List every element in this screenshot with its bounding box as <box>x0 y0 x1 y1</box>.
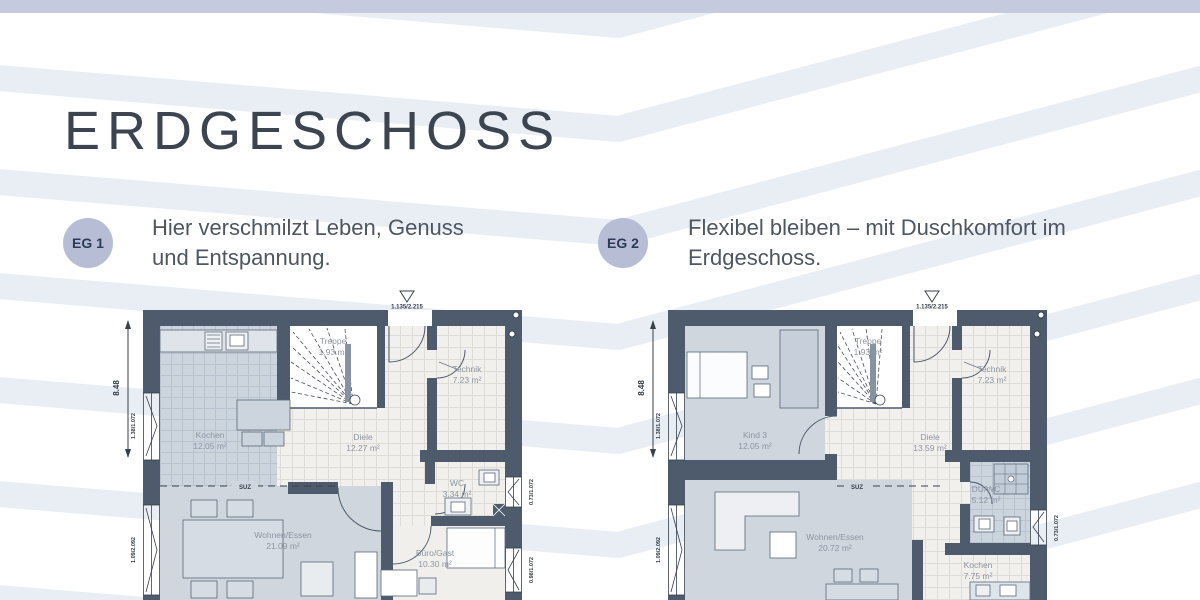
window-label: 1.38/1.072 <box>656 413 662 439</box>
plan-drawing-eg1: 8.48 1.135/2.215 <box>105 288 560 600</box>
room-area-wohnen: 21.09 m² <box>266 541 300 551</box>
room-area-buero: 10.30 m² <box>418 559 452 569</box>
depth-dimension: 8.48 <box>112 320 131 458</box>
room-area-duwc: 5.12 m² <box>972 495 1001 505</box>
window-label: 1.09/2.092 <box>656 537 662 563</box>
entrance-dimension-label: 1.135/2.215 <box>391 305 423 311</box>
window-label: 0.98/1.072 <box>529 557 535 583</box>
drain-marker <box>1038 312 1044 318</box>
suz-label: SUZ <box>851 485 863 491</box>
floor-plan-eg2: 8.48 1.135/2.215 <box>630 288 1085 600</box>
description-eg2: Flexibel bleiben – mit Duschkomfort im E… <box>688 213 1108 274</box>
room-label-technik: Technik <box>453 364 483 374</box>
room-area-diele: 12.27 m² <box>346 443 380 453</box>
room-area-wohnen: 20.72 m² <box>818 543 852 553</box>
description-eg1: Hier verschmilzt Leben, Genuss und Entsp… <box>152 213 482 274</box>
drain-marker <box>1034 331 1040 337</box>
entrance-marker: 1.135/2.215 <box>916 291 948 311</box>
badge-eg1: EG 1 <box>63 218 113 268</box>
room-area-treppe: 1.93 m² <box>854 347 883 357</box>
depth-dimension: 8.48 <box>637 320 656 458</box>
room-area-technik: 7.23 m² <box>453 375 482 385</box>
room-label-wc: WC <box>450 478 464 488</box>
room-label-treppe: Treppe <box>855 336 882 346</box>
room-label-treppe: Treppe <box>320 336 347 346</box>
drain-marker <box>509 331 515 337</box>
window-label: 1.38/1.072 <box>131 413 137 439</box>
room-area-kochen: 12.05 m² <box>193 441 227 451</box>
kitchen-fixtures <box>160 330 290 446</box>
entrance-marker: 1.135/2.215 <box>391 291 423 311</box>
room-label-buero: Büro/Gast <box>416 548 455 558</box>
room-label-diele: Diele <box>353 432 373 442</box>
room-label-wohnen: Wohnen/Essen <box>806 532 864 542</box>
kitchen-fixtures <box>970 582 1030 600</box>
room-label-technik: Technik <box>978 364 1008 374</box>
room-label-kochen: Kochen <box>964 560 993 570</box>
living-furniture <box>715 492 898 600</box>
drain-marker <box>513 312 519 318</box>
kind3-furniture <box>687 330 818 408</box>
floor-plan-eg1: 8.48 1.135/2.215 <box>105 288 560 600</box>
depth-dimension-label: 8.48 <box>112 380 121 396</box>
top-accent-bar <box>0 0 1200 13</box>
room-area-kochen: 7.75 m² <box>964 571 993 581</box>
room-label-kind3: Kind 3 <box>743 430 767 440</box>
room-label-wohnen: Wohnen/Essen <box>254 530 312 540</box>
room-area-treppe: 1.93 m² <box>319 347 348 357</box>
room-area-diele: 13.59 m² <box>913 443 947 453</box>
window-label: 0.73/1.072 <box>1054 515 1060 541</box>
page-title: ERDGESCHOSS <box>64 100 561 162</box>
window-label: 1.09/2.092 <box>131 537 137 563</box>
room-label-duwc: DU/WC <box>972 484 1001 494</box>
room-area-technik: 7.23 m² <box>978 375 1007 385</box>
room-label-diele: Diele <box>920 432 940 442</box>
room-area-kind3: 12.05 m² <box>738 441 772 451</box>
suz-label: SUZ <box>239 485 251 491</box>
badge-eg2: EG 2 <box>598 218 648 268</box>
room-label-kochen: Kochen <box>196 430 225 440</box>
suz-line: SUZ <box>837 481 942 491</box>
entrance-dimension-label: 1.135/2.215 <box>916 305 948 311</box>
window-label: 0.73/1.072 <box>529 479 535 505</box>
depth-dimension-label: 8.48 <box>637 380 646 396</box>
room-area-wc: 3.34 m² <box>443 489 472 499</box>
plan-drawing-eg2: 8.48 1.135/2.215 <box>630 288 1085 600</box>
